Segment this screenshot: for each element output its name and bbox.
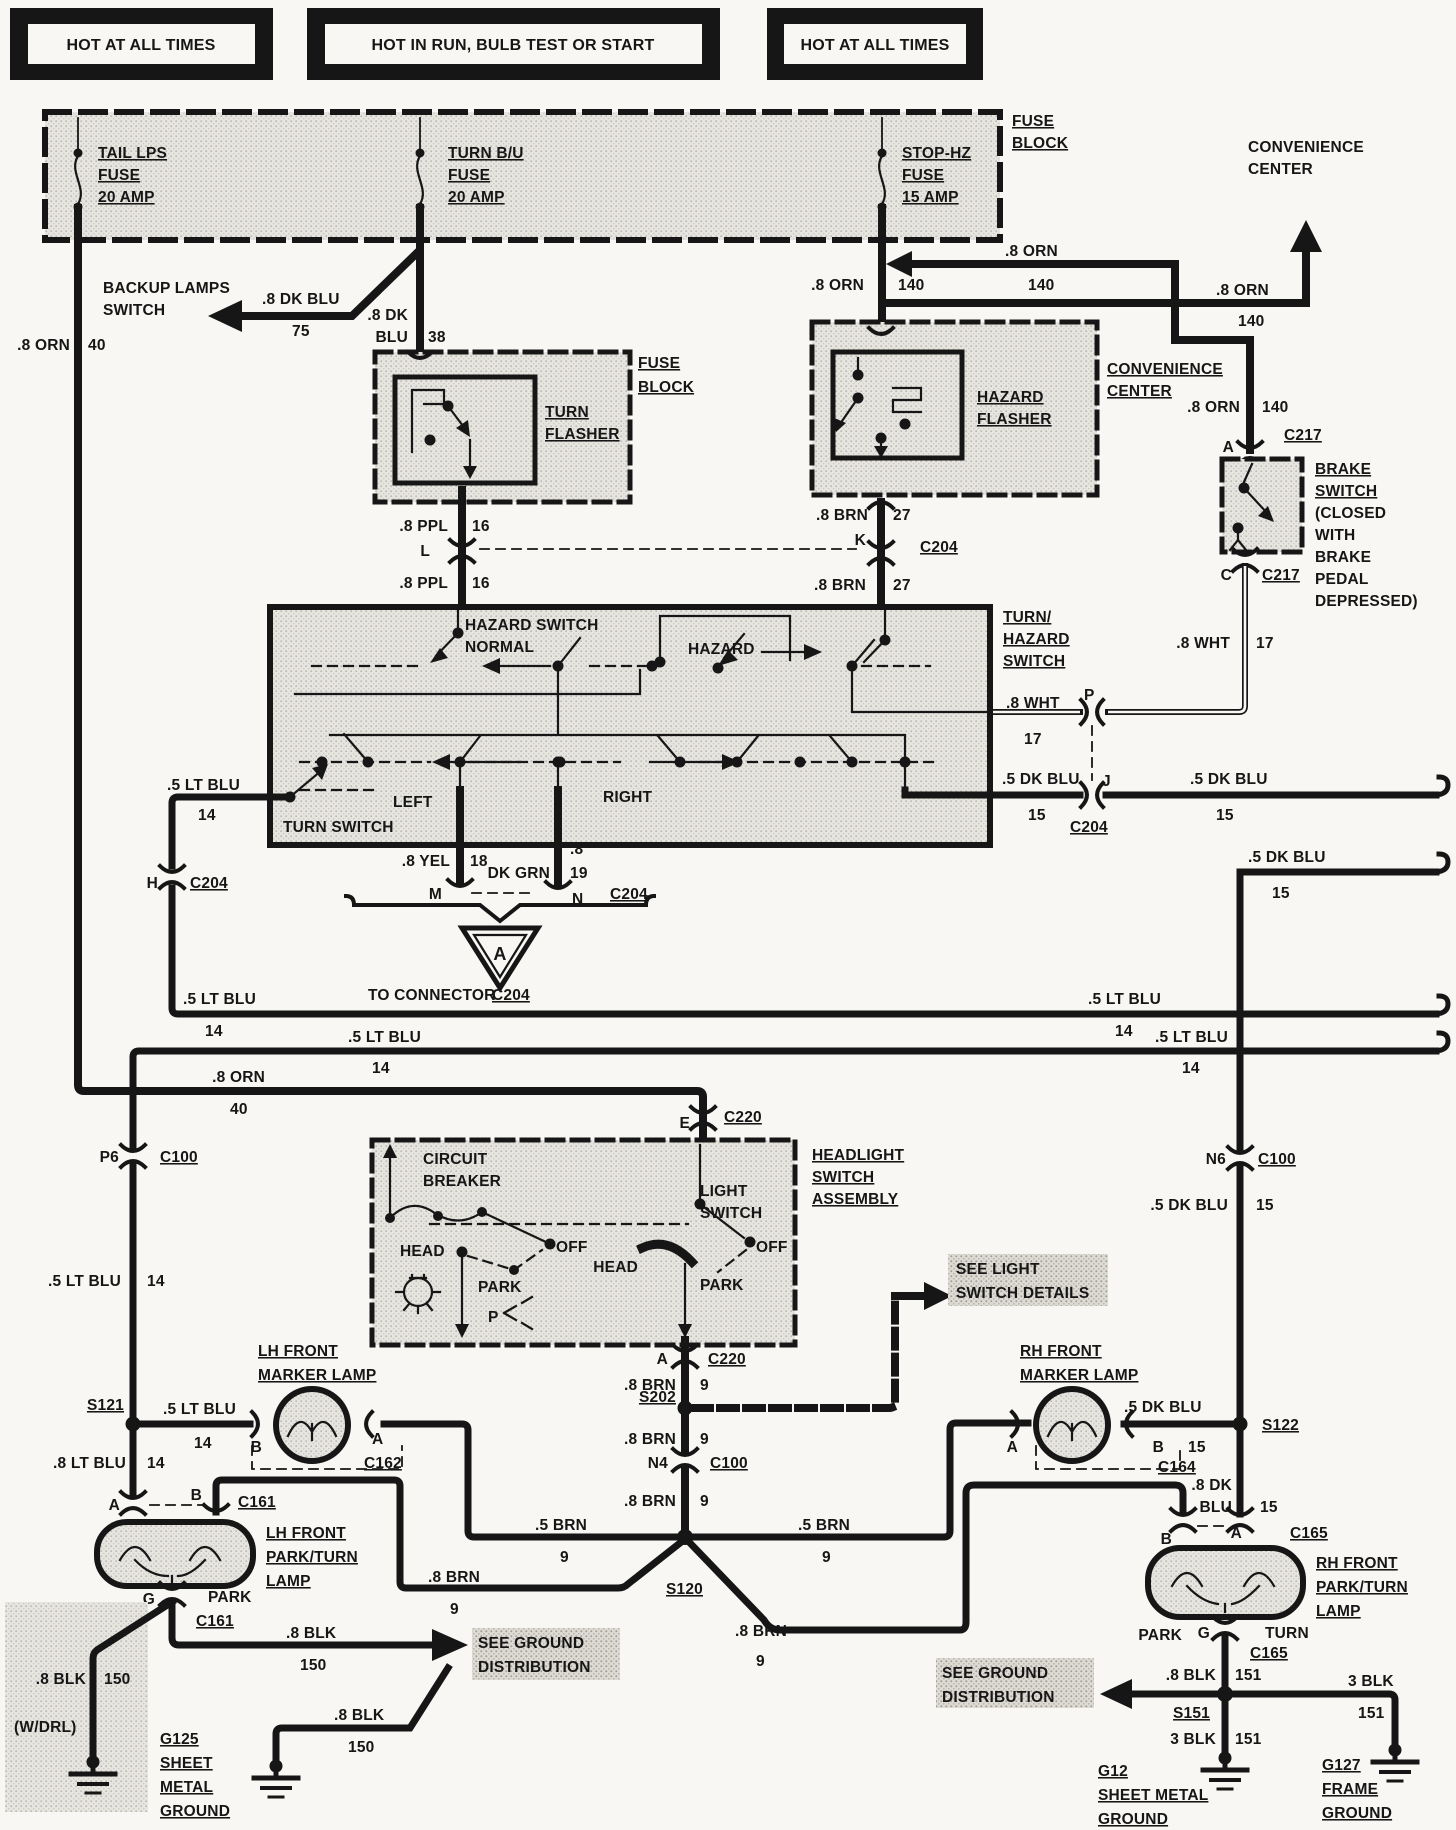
cavity-label: G	[1198, 1625, 1210, 1642]
brake-switch-box: A C217 BRAKE SWITCH (CLOSED WITH BRAKE P…	[1221, 427, 1418, 610]
triangle-a-label: A	[493, 944, 506, 964]
wire-label: 17	[1256, 635, 1274, 652]
hazard-position-label: HAZARD	[688, 641, 755, 658]
connector-label: C164	[1158, 1459, 1196, 1476]
convenience-center-label: CONVENIENCE	[1107, 361, 1223, 378]
wire-label: .5 DK BLU	[1190, 771, 1268, 788]
turn-switch-label: TURN SWITCH	[283, 819, 394, 836]
wire-label: 3 BLK	[1348, 1673, 1394, 1690]
cavity-label: C	[1221, 567, 1232, 584]
cavity-label: B	[1161, 1531, 1172, 1548]
wire-label: 9	[756, 1653, 765, 1670]
wire-label: 27	[893, 507, 911, 524]
to-connector-label: TO CONNECTOR	[368, 987, 496, 1004]
wire-label: .8 DK BLU	[262, 291, 340, 308]
wire-label: 151	[1235, 1731, 1262, 1748]
connector-label: C100	[1258, 1151, 1296, 1168]
wire-label: .8 ORN	[17, 337, 70, 354]
see-ground-label: SEE GROUND	[478, 1635, 584, 1652]
brake-switch-label: WITH	[1315, 527, 1355, 544]
header-label: HOT AT ALL TIMES	[67, 37, 216, 54]
lamp-label: RH FRONT	[1020, 1343, 1102, 1360]
off-label: OFF	[556, 1239, 588, 1256]
connector-label: C100	[160, 1149, 198, 1166]
ground-label: FRAME	[1322, 1781, 1378, 1798]
wire-label: 14	[205, 1023, 223, 1040]
park-label: PARK	[478, 1279, 522, 1296]
wire-label: .8 BRN	[816, 507, 868, 524]
lh-ground-area: .8 BLK 150 (W/DRL) G125 SHEET METAL GROU…	[5, 1602, 620, 1820]
backup-lamps-label: SWITCH	[103, 302, 165, 319]
wire-brn-27: .8 BRN 27 K C204 .8 BRN 27	[814, 502, 958, 607]
wire-label: 16	[472, 575, 490, 592]
see-ground-label: DISTRIBUTION	[478, 1659, 591, 1676]
backup-lamps-label: BACKUP LAMPS	[103, 280, 230, 297]
cavity-label: P6	[100, 1149, 120, 1166]
wire-label: 15	[1260, 1499, 1278, 1516]
connector-label: C100	[710, 1455, 748, 1472]
ground-label: SHEET	[160, 1755, 213, 1772]
wiring-diagram: HOT AT ALL TIMES HOT IN RUN, BULB TEST O…	[0, 0, 1456, 1830]
turn-hazard-switch-box: HAZARD SWITCH NORMAL HAZARD LEFT RIGHT T…	[270, 607, 990, 845]
lamp-label: PARK/TURN	[266, 1549, 358, 1566]
wire-label: 14	[147, 1455, 165, 1472]
fuse-label: TURN B/U	[448, 145, 524, 162]
fuse-block-label: BLOCK	[1012, 135, 1069, 152]
turn-flasher-box: TURN FLASHER FUSE BLOCK	[375, 352, 695, 502]
rh-front-park-turn-lamp: B A C165 PARK G TURN C165 RH FRONT PARK/…	[1138, 1509, 1408, 1662]
wire-label: .5 LT BLU	[1088, 991, 1161, 1008]
wire-brn-9-chain: A C220 .8 BRN 9 S202 .8 BRN 9 N4 C100 .8…	[624, 1340, 748, 1598]
wire-label: .8 LT BLU	[53, 1455, 126, 1472]
splice-label: S151	[1173, 1705, 1210, 1722]
wire-label: .8 PPL	[399, 518, 448, 535]
wire-label: .5 LT BLU	[167, 777, 240, 794]
wire-label: .8 BLK	[286, 1625, 337, 1642]
wire-label: 9	[700, 1377, 709, 1394]
header-hot-in-run: HOT IN RUN, BULB TEST OR START	[307, 8, 720, 80]
wire-label: 9	[700, 1493, 709, 1510]
wire-label: 14	[147, 1273, 165, 1290]
arrow-left-icon	[1100, 1679, 1132, 1709]
circuit-breaker-label: CIRCUIT	[423, 1151, 488, 1168]
wire-label: 150	[104, 1671, 130, 1688]
cavity-label: A	[372, 1431, 383, 1448]
wire-label: .8 BRN	[735, 1623, 787, 1640]
fuse-label: 20 AMP	[98, 189, 155, 206]
wire-dkblu-15-j: J .5 DK BLU 15 C204 .5 DK BLU 15	[990, 771, 1448, 836]
see-ground-label: DISTRIBUTION	[942, 1689, 1055, 1706]
arrow-left-icon	[886, 251, 912, 277]
fuse-block-label: FUSE	[1012, 113, 1054, 130]
circuit-breaker-label: BREAKER	[423, 1173, 501, 1190]
connector-label: C165	[1290, 1525, 1328, 1542]
wire-label: .8 BRN	[428, 1569, 480, 1586]
lamp-label: RH FRONT	[1316, 1555, 1398, 1572]
park-label: PARK	[1138, 1627, 1182, 1644]
wire-label: 151	[1235, 1667, 1262, 1684]
wire-label: .5 LT BLU	[348, 1029, 421, 1046]
wire-label: .8 ORN	[1216, 282, 1269, 299]
ground-label: METAL	[160, 1779, 213, 1796]
wire-label: 150	[300, 1657, 326, 1674]
arrow-left-icon	[208, 300, 242, 332]
cavity-label: A	[109, 1497, 120, 1514]
light-switch-label: LIGHT	[700, 1183, 748, 1200]
splice-label: S122	[1262, 1417, 1299, 1434]
wire-label: 14	[1182, 1060, 1200, 1077]
wire-label: .8 DK	[367, 307, 408, 324]
ground-label: GROUND	[1098, 1811, 1168, 1828]
wire-label: 150	[348, 1739, 374, 1756]
head-label: HEAD	[400, 1243, 445, 1260]
splice-label: S121	[87, 1397, 124, 1414]
light-switch-label: SWITCH	[700, 1205, 762, 1222]
wire-label: .8 DK	[1191, 1477, 1232, 1494]
wire-label: .8 ORN	[1005, 243, 1058, 260]
wire-label: .5 LT BLU	[163, 1401, 236, 1418]
ground-label: G125	[160, 1731, 199, 1748]
wire-label: .5 LT BLU	[1155, 1029, 1228, 1046]
cavity-label: M	[429, 886, 442, 903]
cavity-label: A	[1223, 439, 1234, 456]
fuse-block-label: BLOCK	[638, 379, 695, 396]
lamp-label: MARKER LAMP	[258, 1367, 376, 1384]
wire-label: .8 PPL	[399, 575, 448, 592]
wire-label: .5 DK BLU	[1150, 1197, 1228, 1214]
cavity-label: L	[420, 543, 430, 560]
wire-label: 14	[1115, 1023, 1133, 1040]
cavity-label: K	[855, 532, 867, 549]
wire-label: 15	[1256, 1197, 1274, 1214]
wdrl-label: (W/DRL)	[14, 1719, 77, 1736]
connector-label: C161	[196, 1613, 234, 1630]
hsa-label: SWITCH	[812, 1169, 874, 1186]
hazard-flasher-label: HAZARD	[977, 389, 1044, 406]
wire-label: 140	[1262, 399, 1288, 416]
convenience-center-label: CENTER	[1107, 383, 1172, 400]
wire-label: .8 BRN	[624, 1493, 676, 1510]
fuse-block-label: FUSE	[638, 355, 680, 372]
cavity-label: J	[1102, 773, 1111, 790]
wire-label: 16	[472, 518, 490, 535]
wire-label: .5 LT BLU	[183, 991, 256, 1008]
turn-hazard-switch-label: TURN/ HAZARD SWITCH	[1003, 609, 1070, 670]
cavity-label: A	[1007, 1439, 1018, 1456]
wire-label: 27	[893, 577, 911, 594]
wire-label: .8 BLK	[334, 1707, 385, 1724]
lamp-label: LAMP	[1316, 1603, 1361, 1620]
rh-ground-area: .8 BLK 151 S151 SEE GROUND DISTRIBUTION …	[936, 1636, 1417, 1828]
wire-brn-branches: .5 BRN 9 .8 BRN 9 .5 BRN 9 .8 BRN 9	[216, 1423, 1183, 1670]
brake-switch-label: (CLOSED	[1315, 505, 1386, 522]
wire-label: 14	[194, 1435, 212, 1452]
wire-label: 9	[450, 1601, 459, 1618]
wire-label: 15	[1028, 807, 1046, 824]
lh-front-marker-lamp: LH FRONT MARKER LAMP .5 LT BLU 14 B A C1…	[141, 1343, 402, 1472]
brake-switch-label: BRAKE	[1315, 461, 1371, 478]
wire-label: .8 BLK	[1166, 1667, 1217, 1684]
ground-label: GROUND	[1322, 1805, 1392, 1822]
connector-label: C217	[1262, 567, 1300, 584]
header-label: HOT IN RUN, BULB TEST OR START	[371, 37, 654, 54]
splice-label: S120	[666, 1581, 703, 1598]
wire-label: .5 DK BLU	[1002, 771, 1080, 788]
arrow-up-icon	[1290, 220, 1322, 252]
wire-label: .8 BRN	[624, 1431, 676, 1448]
wire-label: .8 WHT	[1006, 695, 1060, 712]
cavity-label: E	[679, 1115, 690, 1132]
fuse-label: TAIL LPS	[98, 145, 167, 162]
wire-label: .8 ORN	[1187, 399, 1240, 416]
hazard-flasher-box: HAZARD FLASHER CONVENIENCE CENTER	[812, 322, 1223, 495]
fuse-label: 15 AMP	[902, 189, 959, 206]
ground-label: GROUND	[160, 1803, 230, 1820]
ground-label: SHEET METAL	[1098, 1787, 1208, 1804]
park-label: PARK	[700, 1277, 744, 1294]
to-connector-label: C204	[492, 987, 530, 1004]
wire-label: 140	[1238, 313, 1264, 330]
head-label: HEAD	[593, 1259, 638, 1276]
arrow-right-icon	[924, 1282, 952, 1310]
lamp-label: MARKER LAMP	[1020, 1367, 1138, 1384]
wire-label: 38	[428, 329, 446, 346]
left-label: LEFT	[393, 794, 433, 811]
ground-label: G12	[1098, 1763, 1128, 1780]
cavity-label: N6	[1206, 1151, 1226, 1168]
cavity-label: B	[1153, 1439, 1164, 1456]
connector-label: C204	[920, 539, 958, 556]
headlight-switch-assembly: CIRCUIT BREAKER OFF HEAD PARK P LIGHT SW…	[372, 1140, 905, 1345]
wire-label: .8 ORN	[212, 1069, 265, 1086]
connector-label: C220	[724, 1109, 762, 1126]
header-hot-at-all-times-2: HOT AT ALL TIMES	[767, 8, 983, 80]
wire-label: 140	[1028, 277, 1054, 294]
wire-wht-17: .8 WHT 17 P .8 WHT 17	[990, 566, 1274, 780]
cavity-label: N4	[648, 1455, 668, 1472]
label-line: HAZARD	[1003, 631, 1070, 648]
connector-label: C204	[610, 886, 648, 903]
brake-switch-label: DEPRESSED)	[1315, 593, 1418, 610]
rh-front-marker-lamp: RH FRONT MARKER LAMP .5 DK BLU A B 15 C1…	[1007, 1343, 1232, 1476]
p-label: P	[488, 1309, 499, 1326]
wire-label: 15	[1216, 807, 1234, 824]
fuse-block: FUSE BLOCK TAIL LPS FUSE 20 AMP TURN B/U…	[45, 112, 1069, 240]
wire-ppl-16: .8 PPL 16 L .8 PPL 16	[399, 490, 856, 607]
wire-label: BLU	[376, 329, 408, 346]
fuse-label: FUSE	[98, 167, 140, 184]
wire-label: DK GRN	[488, 865, 550, 882]
right-label: RIGHT	[603, 789, 653, 806]
hsa-label: ASSEMBLY	[812, 1191, 899, 1208]
wire-label: 19	[570, 865, 588, 882]
hazard-normal-label: NORMAL	[465, 639, 534, 656]
cavity-label: B	[191, 1487, 202, 1504]
ground-label: G127	[1322, 1757, 1361, 1774]
see-light-label: SWITCH DETAILS	[956, 1285, 1089, 1302]
turn-flasher-label: FLASHER	[545, 426, 620, 443]
wire-label: 18	[470, 853, 488, 870]
turn-flasher-label: TURN	[545, 404, 589, 421]
fuse-label: FUSE	[902, 167, 944, 184]
wire-label: .8 BLK	[36, 1671, 87, 1688]
wire-label: .8	[570, 841, 584, 858]
cavity-label: P	[1084, 687, 1095, 704]
connector-label: C204	[1070, 819, 1108, 836]
connector-label: C204	[190, 875, 228, 892]
hazard-flasher-label: FLASHER	[977, 411, 1052, 428]
cavity-label: H	[147, 875, 158, 892]
fuse-label: STOP-HZ	[902, 145, 971, 162]
brake-switch-label: SWITCH	[1315, 483, 1377, 500]
see-ground-label: SEE GROUND	[942, 1665, 1048, 1682]
wire-label: 15	[1272, 885, 1290, 902]
wire-label: .5 DK BLU	[1248, 849, 1326, 866]
arrow-right-icon	[432, 1629, 468, 1661]
wire-label: 40	[88, 337, 106, 354]
fuse-label: FUSE	[448, 167, 490, 184]
brake-switch-label: BRAKE	[1315, 549, 1371, 566]
header-label: HOT AT ALL TIMES	[801, 37, 950, 54]
label-line: SWITCH	[1003, 653, 1065, 670]
cavity-label: A	[657, 1351, 668, 1368]
convenience-center-label: CENTER	[1248, 161, 1313, 178]
wire-label: .5 LT BLU	[48, 1273, 121, 1290]
wire-label: 9	[700, 1431, 709, 1448]
wire-label: 14	[198, 807, 216, 824]
label-line: TURN/	[1003, 609, 1052, 626]
see-light-label: SEE LIGHT	[956, 1261, 1040, 1278]
wire-label: 9	[560, 1549, 569, 1566]
wire-label: .5 BRN	[535, 1517, 587, 1534]
lamp-label: LH FRONT	[258, 1343, 338, 1360]
splice-label: S202	[639, 1389, 676, 1406]
wire-label: .5 DK BLU	[1124, 1399, 1202, 1416]
cavity-label: A	[1231, 1525, 1242, 1542]
wire-label: 40	[230, 1101, 248, 1118]
wire-label: .8 WHT	[1176, 635, 1230, 652]
wire-label: .8 YEL	[402, 853, 450, 870]
header-hot-at-all-times-1: HOT AT ALL TIMES	[10, 8, 273, 80]
wire-label: 17	[1024, 731, 1042, 748]
wire-label: .5 BRN	[798, 1517, 850, 1534]
wire-label: .8 BRN	[814, 577, 866, 594]
brake-switch-label: PEDAL	[1315, 571, 1369, 588]
hsa-label: HEADLIGHT	[812, 1147, 905, 1164]
wire-label: 14	[372, 1060, 390, 1077]
park-label: PARK	[208, 1589, 252, 1606]
turn-label: TURN	[1265, 1625, 1309, 1642]
lamp-label: LAMP	[266, 1573, 311, 1590]
fuse-label: 20 AMP	[448, 189, 505, 206]
wire-label: 9	[822, 1549, 831, 1566]
wire-label: 75	[292, 323, 310, 340]
wire-label: 15	[1188, 1439, 1206, 1456]
wire-label: 3 BLK	[1170, 1731, 1216, 1748]
hazard-normal-label: HAZARD SWITCH	[465, 617, 598, 634]
wiring-diagram-page: HOT AT ALL TIMES HOT IN RUN, BULB TEST O…	[0, 0, 1456, 1830]
connector-label: C217	[1284, 427, 1322, 444]
off-label: OFF	[756, 1239, 788, 1256]
park-turn-lamp-body	[97, 1522, 253, 1586]
connector-label: C161	[238, 1494, 276, 1511]
connector-label: C220	[708, 1351, 746, 1368]
connector-label: C165	[1250, 1645, 1288, 1662]
wire-label: 151	[1358, 1705, 1385, 1722]
convenience-center-label: CONVENIENCE	[1248, 139, 1364, 156]
wire-label: .8 ORN	[811, 277, 864, 294]
lamp-label: LH FRONT	[266, 1525, 346, 1542]
wire-label: 140	[898, 277, 924, 294]
lamp-label: PARK/TURN	[1316, 1579, 1408, 1596]
